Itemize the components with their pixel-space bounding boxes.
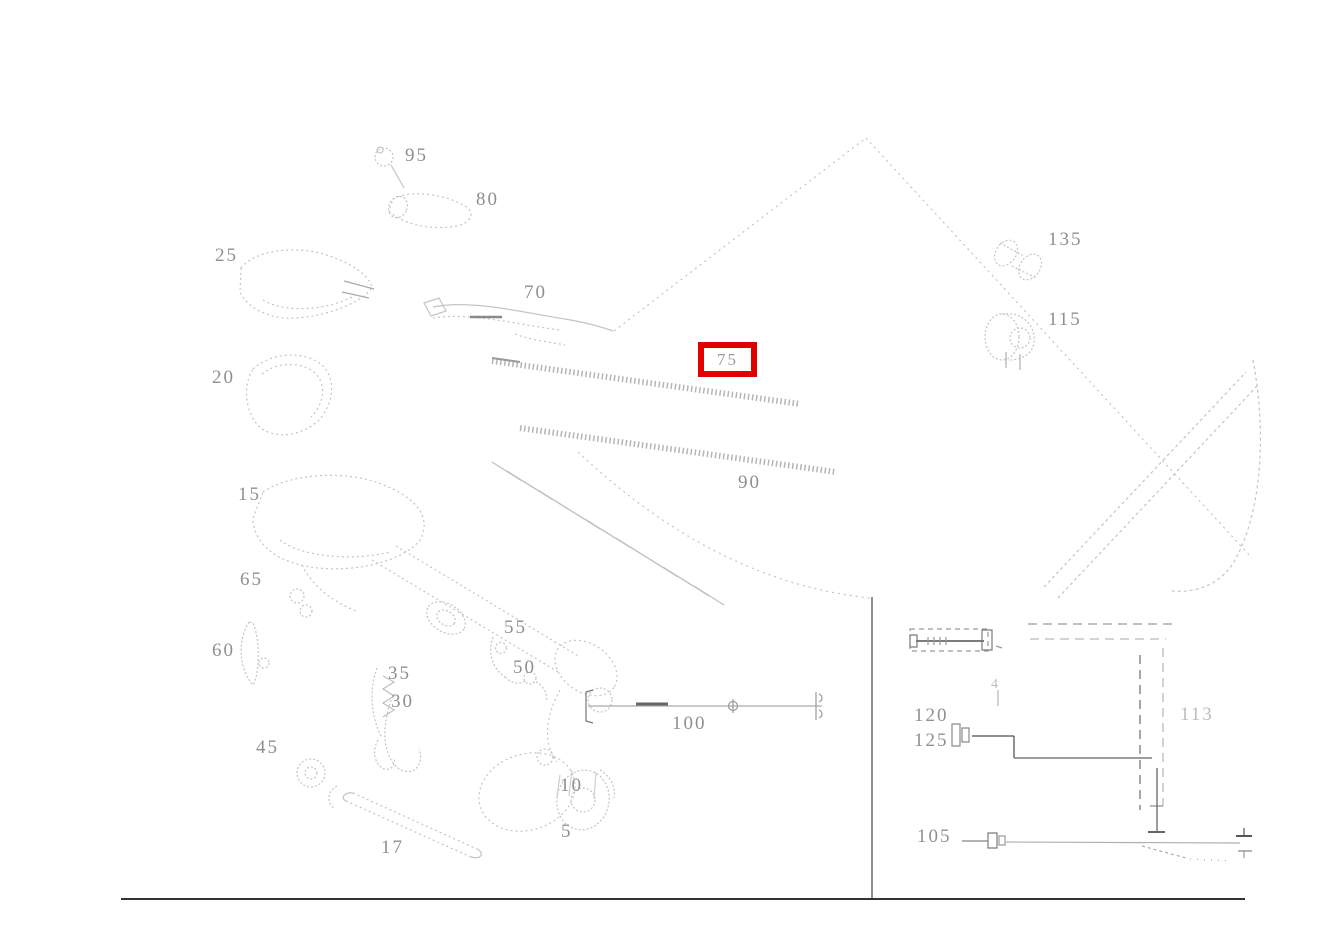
part-label-70: 70 [524,283,547,302]
part-label-135: 135 [1048,230,1083,249]
part-label-90: 90 [738,473,761,492]
part-label-35: 35 [388,664,411,683]
part-label-105: 105 [917,827,952,846]
part-label-120: 120 [914,706,949,725]
part-label-4: 4 [991,678,1000,692]
part-labels-layer: 9580257020901565605550353010045105171351… [0,0,1326,937]
part-label-25: 25 [215,246,238,265]
part-label-100: 100 [672,714,707,733]
part-label-125: 125 [914,731,949,750]
part-label-45: 45 [256,738,279,757]
part-label-60: 60 [212,641,235,660]
part-label-95: 95 [405,146,428,165]
part-label-80: 80 [476,190,499,209]
part-label-17: 17 [381,838,404,857]
part-label-20: 20 [212,368,235,387]
parts-diagram: 9580257020901565605550353010045105171351… [0,0,1326,937]
part-label-10: 10 [560,776,583,795]
highlighted-part-label: 75 [717,351,738,368]
part-label-55: 55 [504,618,527,637]
part-label-115: 115 [1048,310,1082,329]
part-label-65: 65 [240,570,263,589]
part-label-15: 15 [238,485,261,504]
highlighted-part-box[interactable]: 75 [698,342,757,377]
part-label-113: 113 [1180,705,1214,724]
part-label-5: 5 [561,822,573,841]
part-label-50: 50 [513,658,536,677]
part-label-30: 30 [391,692,414,711]
